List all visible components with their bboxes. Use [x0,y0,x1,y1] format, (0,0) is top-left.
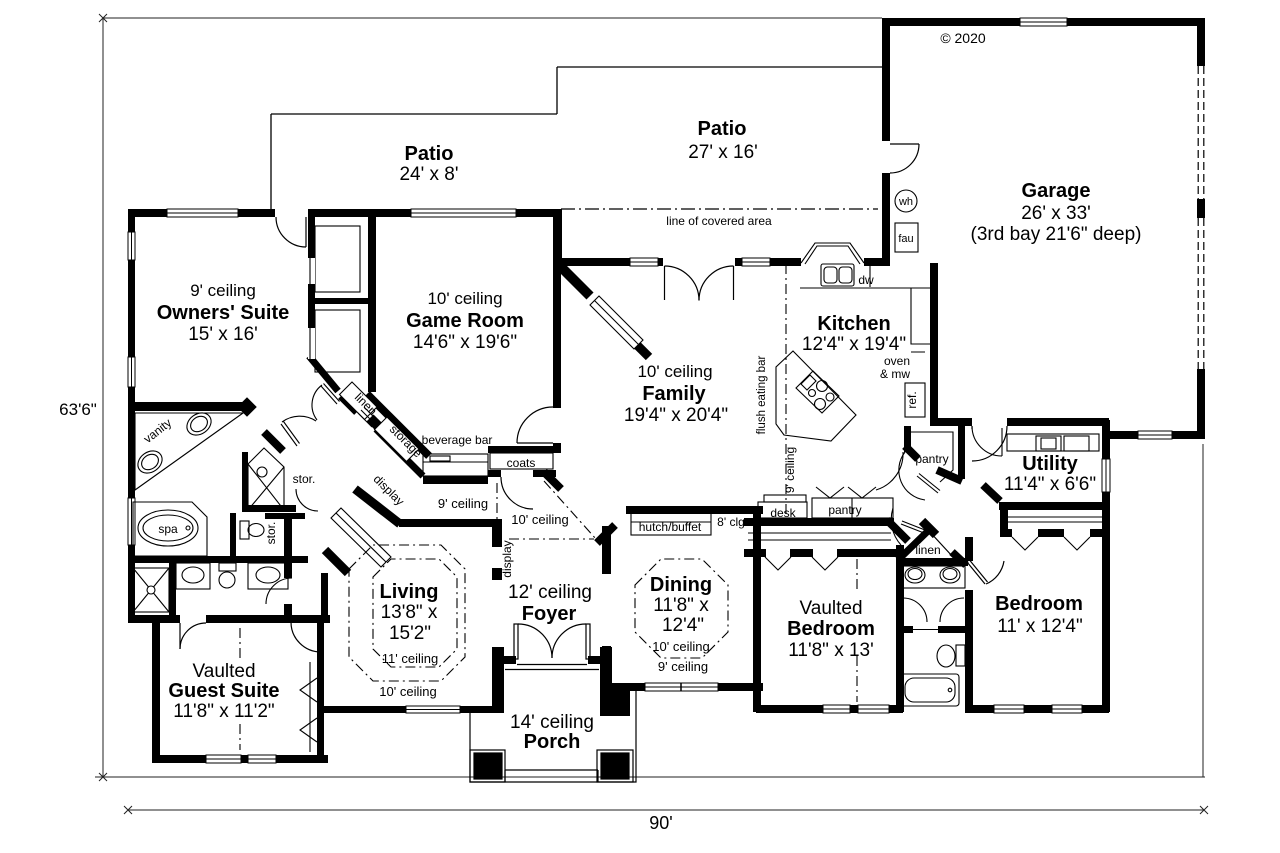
svg-text:hutch/buffet: hutch/buffet [639,520,702,534]
svg-text:63'6": 63'6" [59,400,97,419]
svg-text:Utility: Utility [1022,453,1078,475]
svg-text:Family: Family [642,383,706,405]
svg-text:14' ceiling: 14' ceiling [510,712,594,733]
svg-text:pantry: pantry [915,452,948,466]
svg-text:12' ceiling: 12' ceiling [508,582,592,603]
svg-text:Guest Suite: Guest Suite [168,680,279,702]
svg-text:stor.: stor. [264,522,278,545]
svg-text:flush eating bar: flush eating bar [756,356,768,435]
svg-text:ref.: ref. [905,391,919,408]
svg-text:desk: desk [770,506,796,520]
svg-text:10' ceiling: 10' ceiling [637,362,712,381]
svg-text:12'4" x 19'4": 12'4" x 19'4" [802,334,906,355]
svg-text:Foyer: Foyer [522,603,577,625]
svg-text:Garage: Garage [1022,180,1091,202]
svg-text:11'8" x 13': 11'8" x 13' [788,640,873,661]
svg-text:Vaulted: Vaulted [192,661,255,682]
svg-text:11' ceiling: 11' ceiling [382,651,438,666]
svg-text:Game Room: Game Room [406,310,524,332]
svg-text:Owners' Suite: Owners' Suite [157,302,290,324]
svg-text:9' ceiling: 9' ceiling [658,659,708,674]
svg-text:& mw: & mw [880,367,910,381]
svg-text:10' ceiling: 10' ceiling [379,684,436,699]
svg-text:9' ceiling: 9' ceiling [783,447,797,493]
svg-text:dw: dw [858,273,874,287]
svg-text:15'2": 15'2" [389,623,431,644]
svg-text:19'4" x 20'4": 19'4" x 20'4" [624,405,728,426]
svg-text:10' ceiling: 10' ceiling [652,639,709,654]
svg-text:Porch: Porch [524,731,581,753]
svg-text:11' x 12'4": 11' x 12'4" [997,616,1082,637]
svg-text:27' x 16': 27' x 16' [688,142,758,163]
svg-text:Bedroom: Bedroom [995,593,1083,615]
svg-text:fau: fau [898,233,913,245]
svg-text:line of covered area: line of covered area [666,214,772,228]
svg-text:11'8" x: 11'8" x [653,595,709,616]
svg-text:wh: wh [898,196,913,208]
svg-text:(3rd bay 21'6" deep): (3rd bay 21'6" deep) [971,224,1142,245]
svg-text:10' ceiling: 10' ceiling [427,289,502,308]
svg-text:stor.: stor. [293,472,316,486]
svg-text:11'8" x 11'2": 11'8" x 11'2" [173,701,274,722]
svg-text:90': 90' [649,813,672,833]
svg-text:display: display [500,540,514,577]
svg-text:13'8" x: 13'8" x [381,602,438,623]
svg-text:10' ceiling: 10' ceiling [511,512,568,527]
svg-text:oven: oven [884,354,910,368]
svg-text:26' x 33': 26' x 33' [1021,203,1091,224]
svg-text:14'6" x 19'6": 14'6" x 19'6" [413,332,517,353]
svg-text:spa: spa [158,522,178,536]
svg-text:Dining: Dining [650,574,712,596]
svg-text:Patio: Patio [698,118,747,140]
svg-text:linen: linen [915,543,940,557]
svg-text:© 2020: © 2020 [940,30,986,46]
svg-text:15' x 16': 15' x 16' [188,324,258,345]
svg-text:Vaulted: Vaulted [799,598,862,619]
svg-text:beverage bar: beverage bar [422,433,493,447]
svg-text:9' ceiling: 9' ceiling [190,281,256,300]
svg-text:coats: coats [507,456,536,470]
svg-text:Patio: Patio [405,143,454,165]
svg-text:Bedroom: Bedroom [787,618,875,640]
svg-text:pantry: pantry [828,503,861,517]
svg-text:11'4" x 6'6": 11'4" x 6'6" [1004,474,1096,495]
svg-text:24' x 8': 24' x 8' [399,164,458,185]
svg-text:Kitchen: Kitchen [817,313,890,335]
svg-text:8' clg: 8' clg [717,515,745,529]
svg-text:9' ceiling: 9' ceiling [438,496,488,511]
svg-text:Living: Living [380,581,439,603]
svg-text:12'4": 12'4" [662,615,704,636]
